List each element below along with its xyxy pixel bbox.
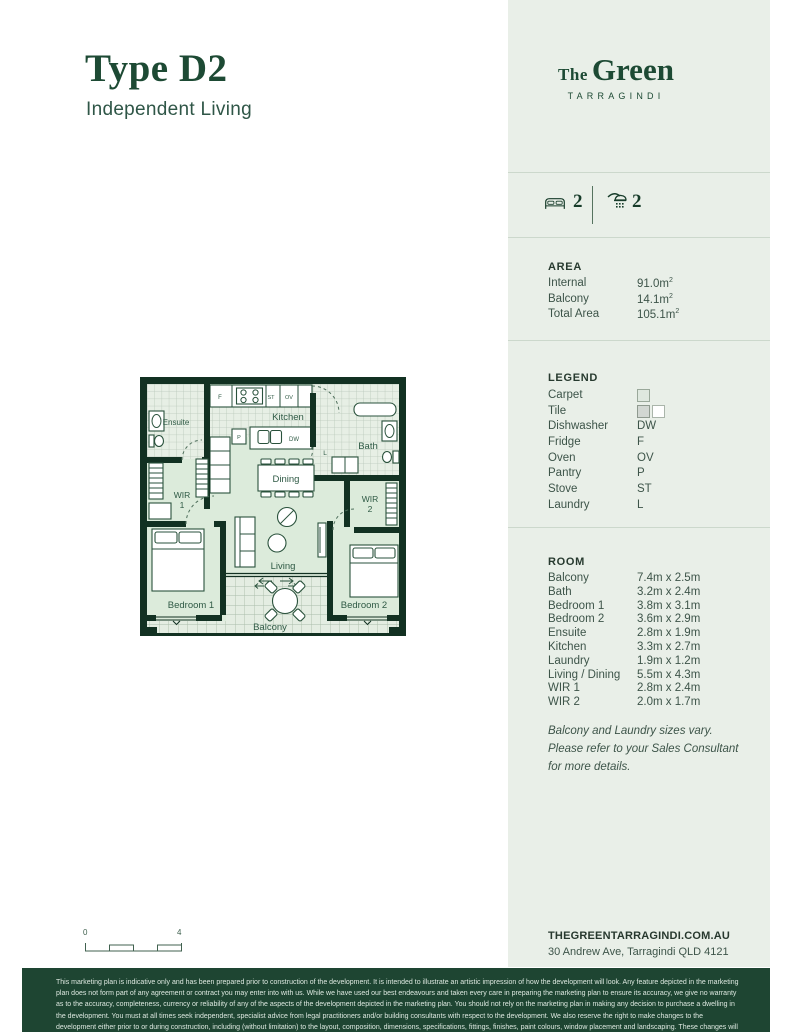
ensuite-label: Ensuite xyxy=(163,418,190,427)
room-row: Kitchen3.3m x 2.7m xyxy=(548,641,744,655)
bedroom1-label: Bedroom 1 xyxy=(168,600,214,611)
disclaimer-footer: This marketing plan is indicative only a… xyxy=(22,968,770,1032)
scale-end: 4 xyxy=(177,928,181,937)
area-table: Internal91.0m2 Balcony14.1m2 Total Area1… xyxy=(548,277,744,324)
floor-plan: Ensuite Kitchen Bath WIR 1 WIR 2 Dining … xyxy=(140,377,406,640)
brand-green: Green xyxy=(592,52,674,87)
room-row: Laundry1.9m x 1.2m xyxy=(548,655,744,669)
floor-plan-drawing: Ensuite Kitchen Bath WIR 1 WIR 2 Dining … xyxy=(140,377,406,640)
bed-count: 2 xyxy=(573,191,583,213)
legend-table: Carpet Tile DishwasherDW FridgeF OvenOV … xyxy=(548,389,744,515)
area-heading: AREA xyxy=(548,261,744,273)
divider xyxy=(508,172,770,173)
dining-label: Dining xyxy=(273,474,300,485)
dishwasher-label: DW xyxy=(289,437,299,443)
bath-count: 2 xyxy=(632,191,642,213)
divider xyxy=(508,340,770,341)
legend-row: OvenOV xyxy=(548,452,744,468)
oven-label: OV xyxy=(285,395,293,401)
marketing-plan-page: Type D2 Independent Living xyxy=(0,0,800,1035)
legend-row: DishwasherDW xyxy=(548,420,744,436)
stove-label: ST xyxy=(267,395,275,401)
pantry-label: P xyxy=(237,435,241,441)
area-row: Internal91.0m2 xyxy=(548,277,744,293)
area-row: Total Area105.1m2 xyxy=(548,308,744,324)
shower-icon xyxy=(605,190,627,214)
divider xyxy=(508,237,770,238)
room-row: WIR 12.8m x 2.4m xyxy=(548,682,744,696)
svg-text:1: 1 xyxy=(180,500,185,510)
coffee-table-icon xyxy=(268,534,286,552)
ensuite-toilet-icon xyxy=(155,436,164,447)
legend-row: StoveST xyxy=(548,483,744,499)
bathtub-icon xyxy=(354,403,396,416)
scale-start: 0 xyxy=(83,928,87,937)
brand-the: The xyxy=(558,65,588,84)
bed-bath-summary: 2 2 xyxy=(508,186,770,226)
room-row: Balcony7.4m x 2.5m xyxy=(548,572,744,586)
legend-row: FridgeF xyxy=(548,436,744,452)
tile-swatch xyxy=(637,405,650,418)
room-row: Ensuite2.8m x 1.9m xyxy=(548,627,744,641)
svg-text:2: 2 xyxy=(368,504,373,514)
legend-row: Carpet xyxy=(548,389,744,405)
laundry-label: L xyxy=(323,450,327,457)
sink-icon xyxy=(258,431,269,444)
legend-row: LaundryL xyxy=(548,499,744,515)
website: THEGREENTARRAGINDI.COM.AU xyxy=(548,930,730,942)
area-row: Balcony14.1m2 xyxy=(548,293,744,309)
room-row: Living / Dining5.5m x 4.3m xyxy=(548,669,744,683)
brand-logo: TheGreen TARRAGINDI xyxy=(526,52,706,101)
legend-row: PantryP xyxy=(548,467,744,483)
tile-swatch xyxy=(652,405,665,418)
tv-unit-icon xyxy=(318,523,326,557)
bedroom2-label: Bedroom 2 xyxy=(341,600,387,611)
fridge-label: F xyxy=(218,395,222,401)
summary-divider xyxy=(592,186,593,224)
outdoor-table-icon xyxy=(273,589,298,614)
sofa-icon xyxy=(235,517,255,567)
brand-location: TARRAGINDI xyxy=(526,91,706,101)
wir1-label: WIR xyxy=(174,490,191,500)
living-label: Living xyxy=(271,561,296,572)
info-panel: TheGreen TARRAGINDI 2 xyxy=(508,0,770,967)
legend-row: Tile xyxy=(548,405,744,421)
scale-bar: 0 4 xyxy=(85,928,195,956)
balcony-label: Balcony xyxy=(253,622,287,633)
bed-icon xyxy=(544,194,566,211)
bath-toilet-icon xyxy=(383,452,392,463)
disclaimer-text: This marketing plan is indicative only a… xyxy=(22,968,770,1035)
legend-heading: LEGEND xyxy=(548,372,744,384)
wir2-label: WIR xyxy=(362,494,379,504)
stove-icon xyxy=(237,388,263,404)
divider xyxy=(508,527,770,528)
carpet-swatch xyxy=(637,389,650,402)
room-row: Bedroom 23.6m x 2.9m xyxy=(548,613,744,627)
room-table: Balcony7.4m x 2.5m Bath3.2m x 2.4m Bedro… xyxy=(548,572,744,710)
bath-label: Bath xyxy=(358,441,378,452)
address: 30 Andrew Ave, Tarragindi QLD 4121 xyxy=(548,946,729,958)
kitchen-label: Kitchen xyxy=(272,412,304,423)
room-row: Bedroom 13.8m x 3.1m xyxy=(548,600,744,614)
page-subtitle: Independent Living xyxy=(86,99,252,121)
sizes-note: Balcony and Laundry sizes vary. Please r… xyxy=(548,722,739,776)
page-title: Type D2 xyxy=(85,46,228,91)
room-heading: ROOM xyxy=(548,556,744,568)
room-row: WIR 22.0m x 1.7m xyxy=(548,696,744,710)
room-row: Bath3.2m x 2.4m xyxy=(548,586,744,600)
